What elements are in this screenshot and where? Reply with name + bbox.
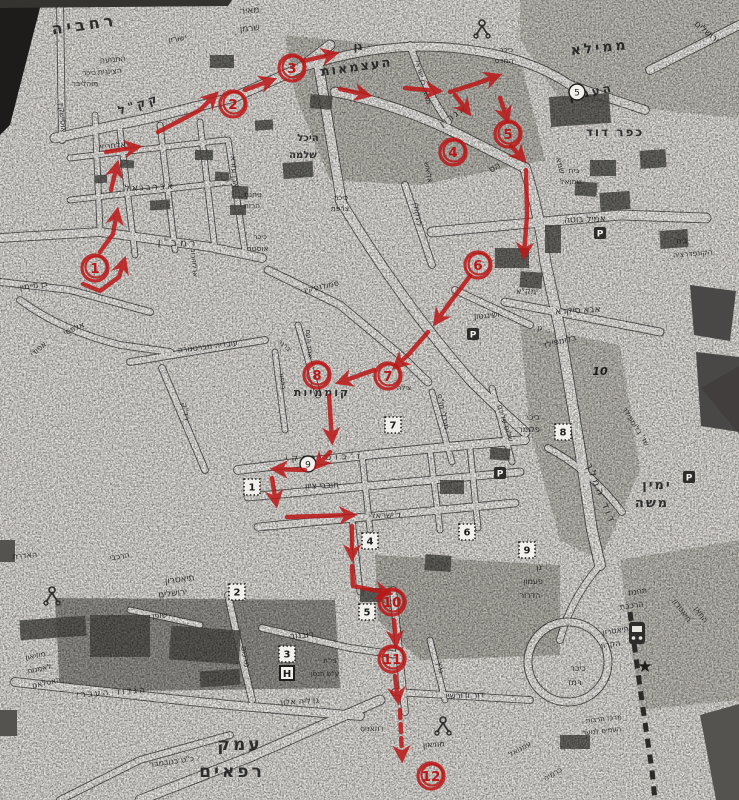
street-label: גן: [538, 324, 543, 332]
street-label: פלומר: [518, 425, 540, 434]
street-label: אמיל בוטה: [564, 214, 606, 225]
street-label: היכל: [297, 133, 319, 144]
street-label: דור ודורשיו: [445, 690, 484, 701]
street-label: משה: [635, 496, 669, 511]
street-label: שרמן: [239, 23, 260, 35]
route-marker-number: 1: [90, 261, 99, 277]
dotnum-icon: 6: [459, 524, 475, 540]
dotnum-icon: 2: [229, 584, 245, 600]
svg-text:P: P: [470, 331, 477, 341]
street-label: מוזיאון: [422, 739, 445, 750]
svg-text:3: 3: [284, 650, 291, 661]
train-icon: [629, 622, 645, 644]
street-label: דובנוב: [290, 630, 315, 642]
route-marker-number: 12: [422, 769, 441, 785]
svg-text:5: 5: [574, 89, 580, 99]
inum-icon: 10: [592, 365, 608, 378]
route-marker-number: 2: [228, 97, 237, 113]
hospital-icon: H: [280, 666, 294, 680]
street-label: אוסטר: [247, 244, 268, 253]
street-label: גן: [354, 40, 363, 53]
dotnum-icon: 5: [359, 604, 375, 620]
route-marker-number: 4: [448, 145, 457, 161]
street-label: עמק: [217, 735, 262, 755]
dotnum-icon: 8: [555, 424, 571, 440]
route-arrow: [329, 396, 332, 440]
svg-text:P: P: [497, 470, 504, 480]
city-map-image: רחביהממילאהעמקכפר דודימיןמשהעמקרפאיםקוממ…: [0, 0, 739, 800]
svg-text:8: 8: [560, 428, 567, 439]
street-label: כפר דוד: [586, 125, 644, 139]
svg-text:P: P: [686, 474, 693, 484]
parking-icon: P: [494, 467, 506, 480]
route-arrow: [394, 620, 396, 643]
dotnum-icon: 4: [362, 533, 378, 549]
street-label: ע"ש הנסן: [311, 670, 340, 678]
svg-text:1: 1: [249, 483, 256, 494]
street-label: שמואל: [560, 177, 582, 186]
svg-text:9: 9: [524, 546, 531, 557]
street-label: כיכר: [82, 68, 96, 77]
route-arrow: [405, 88, 438, 91]
route-marker-number: 10: [383, 595, 402, 611]
street-label: טחנת: [244, 190, 262, 199]
scanned-map-page: רחביהממילאהעמקכפר דודימיןמשהעמקרפאיםקוממ…: [0, 0, 739, 800]
route-marker-number: 11: [383, 652, 402, 668]
street-label: פעמון: [523, 577, 543, 586]
dotnum-icon: 7: [385, 417, 401, 433]
route-arrow: [395, 676, 398, 700]
street-label: מוהליבר: [72, 79, 99, 88]
street-label: בי"ח: [323, 657, 336, 665]
route-marker-number: 7: [383, 369, 392, 385]
street-label: ימין: [642, 478, 672, 493]
street-label: כיכר: [499, 45, 513, 54]
route-marker-number: 5: [503, 127, 512, 143]
svg-text:6: 6: [464, 528, 471, 539]
street-label: חובבי ציון: [305, 480, 339, 491]
street-label: בלפור: [277, 371, 287, 390]
street-label: גן: [536, 563, 542, 572]
street-label: שופן: [152, 610, 168, 620]
svg-text:2: 2: [234, 588, 241, 599]
street-label: רוזאניס: [360, 724, 384, 734]
street-label: כיכר: [570, 664, 586, 674]
parking-icon: P: [467, 328, 479, 341]
street-label: מאיר: [240, 5, 260, 17]
dotnum-icon: 3: [279, 646, 295, 662]
svg-text:10: 10: [592, 365, 608, 378]
svg-text:5: 5: [364, 608, 371, 619]
route-marker-number: 8: [312, 368, 321, 384]
svg-text:H: H: [283, 669, 291, 680]
street-label: הדרור: [520, 591, 541, 600]
svg-text:4: 4: [367, 537, 374, 548]
svg-text:P: P: [597, 230, 604, 240]
street-label: בית: [676, 235, 688, 245]
photocopy-noise-coarse: [0, 0, 739, 800]
parking-icon: P: [594, 227, 606, 240]
svg-text:★: ★: [637, 657, 652, 677]
route-marker-number: 6: [473, 258, 482, 274]
svg-text:7: 7: [390, 421, 397, 432]
street-label: גדליה אלון: [281, 696, 320, 708]
route-arrow: [287, 515, 352, 517]
route-arrow: [400, 710, 402, 758]
street-label: כיכר: [334, 193, 348, 202]
street-label: כיכר: [253, 232, 267, 241]
parking-icon: P: [683, 471, 695, 484]
pcircle-icon: 5: [569, 84, 585, 100]
street-label: שלמה: [289, 150, 317, 161]
street-label: המכס: [495, 56, 514, 65]
street-label: ד'ישראלי: [369, 510, 402, 521]
route-arrow: [275, 469, 305, 470]
route-marker-number: 3: [287, 61, 296, 77]
street-label: רמז: [568, 678, 582, 688]
street-label: רפאים: [199, 762, 265, 782]
street-label: ימק"א: [516, 287, 538, 296]
dotnum-icon: 9: [519, 542, 535, 558]
dotnum-icon: 1: [244, 479, 260, 495]
street-label: הרוח: [244, 201, 260, 210]
street-label: כיכר: [525, 413, 540, 422]
star-icon: ★: [637, 657, 652, 677]
street-label: בית: [569, 166, 581, 175]
street-label: צרפת: [331, 204, 349, 213]
